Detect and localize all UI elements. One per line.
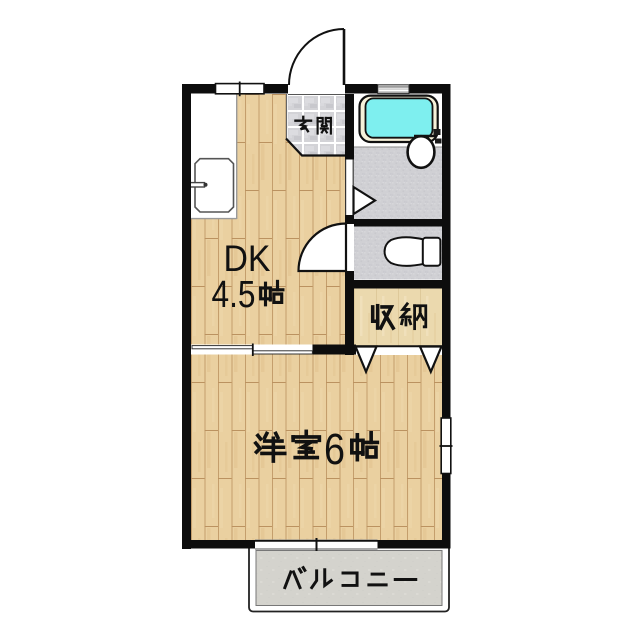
svg-text:6: 6 [324,425,345,474]
svg-text:DK: DK [224,238,271,279]
svg-text:4.5: 4.5 [212,274,256,316]
